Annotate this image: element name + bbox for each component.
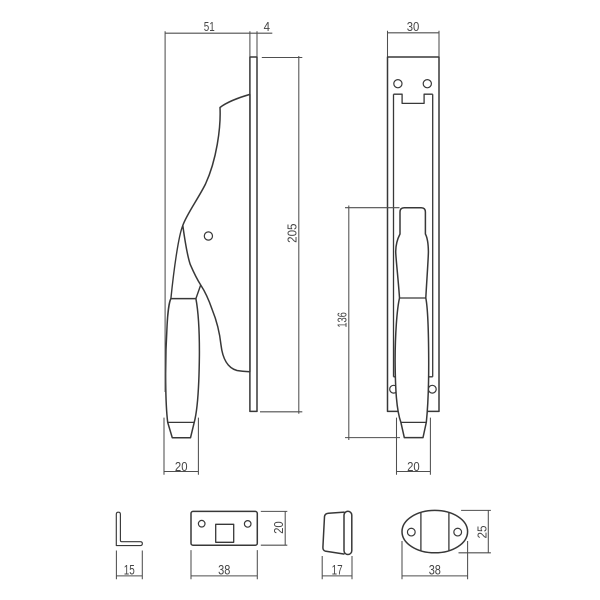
svg-text:20: 20	[271, 521, 286, 534]
svg-text:38: 38	[429, 562, 441, 577]
svg-text:51: 51	[204, 19, 215, 34]
svg-text:15: 15	[124, 562, 135, 577]
svg-text:25: 25	[474, 526, 489, 539]
svg-text:205: 205	[285, 224, 300, 243]
svg-text:38: 38	[218, 562, 230, 577]
svg-text:30: 30	[407, 19, 420, 34]
svg-text:4: 4	[264, 19, 270, 34]
svg-text:20: 20	[407, 459, 420, 474]
svg-text:136: 136	[334, 312, 349, 328]
svg-text:17: 17	[332, 562, 343, 577]
svg-text:20: 20	[175, 459, 188, 474]
